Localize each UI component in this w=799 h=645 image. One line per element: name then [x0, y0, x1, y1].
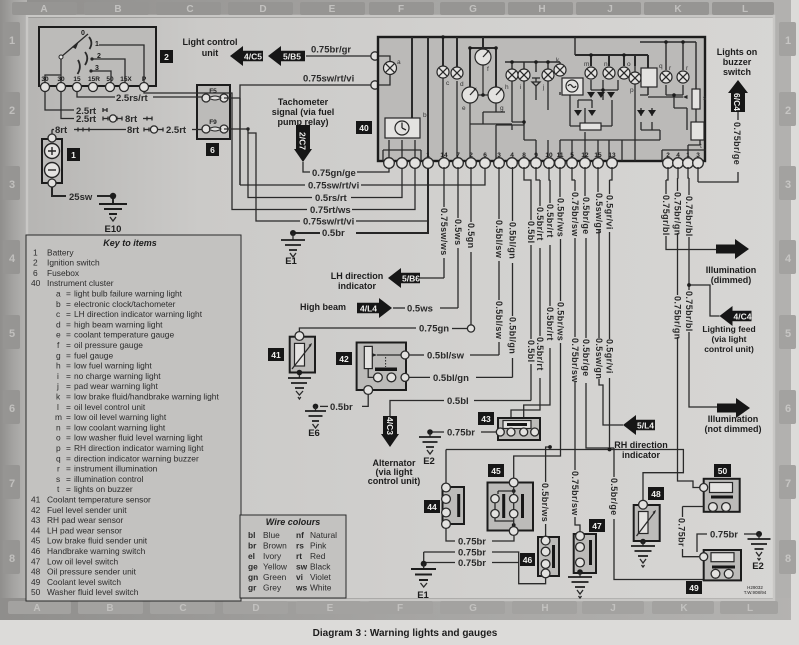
svg-text:0.5ws: 0.5ws — [407, 304, 433, 315]
svg-text:nf: nf — [296, 530, 304, 540]
svg-text:low coolant warning light: low coolant warning light — [74, 422, 166, 432]
svg-text:47: 47 — [592, 521, 602, 531]
svg-text:=: = — [66, 402, 71, 412]
svg-text:E2: E2 — [423, 456, 435, 467]
svg-text:=: = — [66, 309, 71, 319]
svg-text:0.5br/rt: 0.5br/rt — [535, 207, 545, 241]
svg-text:0.5bl/sw: 0.5bl/sw — [494, 220, 504, 259]
svg-text:6: 6 — [785, 403, 791, 415]
svg-text:b: b — [56, 299, 61, 309]
svg-text:Tachometer: Tachometer — [278, 97, 329, 107]
svg-text:0.5sw/gn: 0.5sw/gn — [594, 193, 604, 234]
svg-text:0.75br/bl: 0.75br/bl — [684, 196, 694, 237]
svg-text:oil pressure gauge: oil pressure gauge — [74, 340, 143, 350]
svg-text:el: el — [248, 551, 255, 561]
svg-text:Blue: Blue — [263, 530, 280, 540]
svg-text:46: 46 — [523, 555, 533, 565]
svg-text:42: 42 — [339, 354, 349, 364]
svg-text:6: 6 — [9, 403, 15, 415]
svg-text:47: 47 — [31, 556, 41, 566]
svg-text:2: 2 — [33, 258, 38, 268]
svg-text:Battery: Battery — [47, 247, 74, 257]
svg-text:n: n — [56, 422, 61, 432]
svg-text:6/C4: 6/C4 — [732, 93, 742, 111]
svg-text:0.75sw/rt/vi: 0.75sw/rt/vi — [308, 181, 359, 192]
svg-text:0.75br/gr: 0.75br/gr — [311, 45, 351, 56]
svg-text:0.5br/rt: 0.5br/rt — [535, 337, 545, 371]
svg-text:15R: 15R — [88, 76, 100, 83]
svg-text:2: 2 — [97, 53, 101, 60]
svg-text:illumination control: illumination control — [74, 474, 143, 484]
svg-text:0.5br: 0.5br — [330, 402, 353, 413]
svg-text:2.5rt: 2.5rt — [76, 114, 97, 125]
svg-text:=: = — [66, 299, 71, 309]
svg-text:0.75br/bl: 0.75br/bl — [684, 291, 694, 332]
svg-text:0.75br: 0.75br — [458, 558, 486, 569]
svg-text:8: 8 — [9, 553, 15, 565]
svg-text:3: 3 — [785, 179, 791, 191]
svg-text:3: 3 — [9, 179, 15, 191]
svg-text:0.5br/ge: 0.5br/ge — [581, 339, 591, 377]
svg-text:J: J — [607, 4, 613, 15]
svg-text:low oil level warning light: low oil level warning light — [74, 412, 167, 422]
svg-text:E2: E2 — [752, 561, 764, 572]
svg-text:p: p — [630, 87, 634, 94]
svg-text:d: d — [460, 81, 464, 88]
svg-text:i: i — [520, 84, 521, 91]
svg-text:F9: F9 — [209, 119, 217, 126]
svg-text:1: 1 — [785, 35, 791, 47]
svg-text:0.75br: 0.75br — [458, 548, 486, 559]
svg-text:(dimmed): (dimmed) — [711, 275, 752, 285]
svg-text:=: = — [66, 433, 71, 443]
svg-text:j: j — [542, 84, 544, 91]
svg-text:0.5br/ws: 0.5br/ws — [540, 483, 550, 522]
svg-text:d: d — [56, 319, 61, 329]
svg-text:ws: ws — [295, 583, 308, 593]
svg-text:4: 4 — [785, 253, 792, 265]
svg-text:2.5rt: 2.5rt — [166, 125, 187, 136]
svg-text:F: F — [398, 4, 404, 15]
svg-text:K: K — [680, 603, 688, 614]
svg-text:1: 1 — [95, 41, 99, 48]
svg-text:Washer fluid level switch: Washer fluid level switch — [47, 587, 139, 597]
svg-text:5: 5 — [9, 328, 15, 340]
svg-text:j: j — [56, 381, 59, 391]
svg-text:=: = — [66, 319, 71, 329]
svg-text:=: = — [66, 350, 71, 360]
svg-text:Oil pressure sender unit: Oil pressure sender unit — [47, 567, 137, 577]
svg-text:0.75br/sw: 0.75br/sw — [570, 338, 580, 383]
svg-text:2.5rs/rt: 2.5rs/rt — [116, 93, 149, 104]
svg-text:0.5sw/gn: 0.5sw/gn — [594, 338, 604, 379]
svg-text:vi: vi — [296, 572, 303, 582]
svg-text:41: 41 — [31, 495, 41, 505]
svg-text:D: D — [259, 4, 266, 15]
svg-text:direction indicator warning bu: direction indicator warning buzzer — [74, 453, 199, 463]
svg-text:=: = — [66, 361, 71, 371]
svg-text:2: 2 — [164, 52, 169, 62]
svg-text:40: 40 — [31, 278, 41, 288]
svg-text:3: 3 — [95, 65, 99, 72]
svg-text:44: 44 — [31, 525, 41, 535]
svg-text:Lighting feed: Lighting feed — [702, 324, 755, 334]
svg-text:Natural: Natural — [310, 530, 337, 540]
svg-text:High beam: High beam — [300, 302, 346, 312]
svg-text:br: br — [248, 541, 257, 551]
svg-text:e: e — [56, 330, 61, 340]
svg-text:0.75gn/ge: 0.75gn/ge — [312, 168, 356, 179]
svg-text:rs: rs — [296, 541, 304, 551]
svg-text:low fuel warning light: low fuel warning light — [74, 361, 152, 371]
svg-text:49: 49 — [31, 577, 41, 587]
svg-text:control unit): control unit) — [704, 344, 754, 354]
svg-text:h: h — [56, 361, 61, 371]
svg-text:control unit): control unit) — [368, 476, 421, 486]
svg-text:8rt: 8rt — [55, 125, 68, 136]
svg-text:q: q — [659, 63, 663, 70]
svg-text:49: 49 — [689, 583, 699, 593]
svg-text:ge: ge — [248, 562, 258, 572]
svg-text:B: B — [106, 603, 113, 614]
svg-text:G: G — [469, 603, 477, 614]
svg-text:0.75sw/ws: 0.75sw/ws — [439, 208, 449, 256]
svg-text:43: 43 — [31, 515, 41, 525]
svg-text:high beam warning light: high beam warning light — [74, 319, 163, 329]
svg-text:e: e — [462, 105, 466, 112]
svg-text:0.75rt/ws: 0.75rt/ws — [310, 205, 351, 216]
svg-text:buzzer: buzzer — [723, 57, 752, 67]
svg-text:(via light: (via light — [712, 334, 747, 344]
svg-text:0.75gn: 0.75gn — [419, 324, 449, 335]
svg-text:E10: E10 — [105, 224, 122, 235]
svg-text:gr: gr — [248, 583, 257, 593]
svg-text:=: = — [66, 381, 71, 391]
svg-text:Grey: Grey — [263, 583, 282, 593]
svg-text:LH pad wear sensor: LH pad wear sensor — [47, 525, 122, 535]
svg-text:=: = — [66, 484, 71, 494]
svg-text:48: 48 — [31, 567, 41, 577]
svg-text:RH direction: RH direction — [614, 440, 668, 450]
svg-text:42: 42 — [31, 505, 41, 515]
svg-text:43: 43 — [481, 414, 491, 424]
svg-text:0.75gr/bl: 0.75gr/bl — [661, 195, 671, 236]
svg-text:=: = — [66, 443, 71, 453]
svg-text:g: g — [500, 105, 504, 112]
svg-text:A: A — [33, 603, 40, 614]
svg-text:pad wear warning light: pad wear warning light — [74, 381, 158, 391]
svg-text:electronic clock/tachometer: electronic clock/tachometer — [74, 299, 176, 309]
svg-text:5/B5: 5/B5 — [283, 52, 301, 62]
svg-text:7: 7 — [9, 478, 15, 490]
svg-text:Fusebox: Fusebox — [47, 268, 80, 278]
svg-text:41: 41 — [271, 350, 281, 360]
svg-text:Yellow: Yellow — [263, 562, 288, 572]
svg-text:E: E — [329, 4, 336, 15]
svg-text:Ignition switch: Ignition switch — [47, 258, 100, 268]
svg-text:a: a — [397, 59, 401, 66]
svg-text:lights on buzzer: lights on buzzer — [74, 484, 133, 494]
svg-text:L: L — [742, 4, 748, 15]
svg-text:0.5gr/vi: 0.5gr/vi — [605, 339, 615, 374]
svg-text:0.75br/gn: 0.75br/gn — [673, 296, 683, 340]
svg-text:RH pad wear sensor: RH pad wear sensor — [47, 515, 124, 525]
svg-text:RH direction indicator warning: RH direction indicator warning light — [74, 443, 204, 453]
svg-text:0.5br: 0.5br — [322, 228, 345, 239]
svg-text:C: C — [179, 603, 186, 614]
svg-text:Violet: Violet — [310, 572, 331, 582]
svg-text:(not dimmed): (not dimmed) — [705, 424, 762, 434]
svg-text:=: = — [66, 371, 71, 381]
svg-text:Green: Green — [263, 572, 287, 582]
svg-text:0.5gr/vi: 0.5gr/vi — [605, 195, 615, 230]
svg-text:=: = — [66, 412, 71, 422]
svg-text:indicator: indicator — [338, 281, 377, 291]
svg-text:0.5br/rt: 0.5br/rt — [545, 307, 555, 341]
svg-text:Red: Red — [310, 551, 326, 561]
svg-text:5: 5 — [785, 328, 791, 340]
svg-text:m: m — [55, 412, 62, 422]
svg-text:=: = — [66, 289, 71, 299]
svg-text:15X: 15X — [120, 76, 132, 83]
svg-text:Low brake fluid sender unit: Low brake fluid sender unit — [47, 536, 148, 546]
svg-text:0.5br/rt: 0.5br/rt — [545, 204, 555, 238]
svg-text:J: J — [610, 603, 616, 614]
svg-text:0.5bl/sw: 0.5bl/sw — [494, 301, 504, 340]
svg-text:A: A — [40, 4, 47, 15]
svg-text:8rt: 8rt — [125, 114, 138, 125]
svg-text:1: 1 — [33, 247, 38, 257]
svg-text:=: = — [66, 392, 71, 402]
svg-text:0.5bl: 0.5bl — [447, 396, 469, 407]
svg-text:0.75br: 0.75br — [458, 537, 486, 548]
svg-text:F: F — [397, 603, 403, 614]
svg-text:H: H — [538, 4, 545, 15]
svg-text:E6: E6 — [308, 428, 320, 439]
svg-text:7: 7 — [785, 478, 791, 490]
svg-text:Key to items: Key to items — [103, 238, 157, 248]
svg-text:0.5gn: 0.5gn — [466, 223, 476, 249]
svg-text:Brown: Brown — [263, 541, 287, 551]
svg-text:low washer fluid level warning: low washer fluid level warning light — [74, 433, 203, 443]
svg-text:Lights on: Lights on — [717, 47, 758, 57]
svg-text:0.75sw/rt/vi: 0.75sw/rt/vi — [303, 74, 354, 85]
svg-text:H: H — [541, 603, 548, 614]
svg-text:0.5br/ws: 0.5br/ws — [556, 198, 566, 237]
svg-text:p: p — [56, 443, 61, 453]
svg-text:Coolant level switch: Coolant level switch — [47, 577, 121, 587]
svg-text:t: t — [700, 143, 702, 150]
svg-text:low brake fluid/handbrake warn: low brake fluid/handbrake warning light — [74, 392, 219, 402]
svg-text:Wire colours: Wire colours — [266, 517, 320, 527]
svg-text:4: 4 — [9, 253, 16, 265]
svg-text:b: b — [423, 112, 427, 119]
svg-text:0.75br/ge: 0.75br/ge — [732, 122, 742, 165]
svg-text:0: 0 — [81, 30, 85, 37]
svg-text:0.5rs/rt: 0.5rs/rt — [315, 193, 348, 204]
svg-text:5/B6: 5/B6 — [402, 274, 420, 284]
svg-text:E1: E1 — [285, 256, 297, 267]
svg-text:0.75br: 0.75br — [710, 530, 738, 541]
svg-text:4/C3: 4/C3 — [385, 417, 395, 435]
svg-text:6: 6 — [210, 145, 215, 155]
svg-text:0.75br: 0.75br — [447, 428, 475, 439]
svg-text:indicator: indicator — [622, 450, 661, 460]
svg-text:=: = — [66, 340, 71, 350]
svg-text:T.W.908/94: T.W.908/94 — [744, 590, 767, 595]
svg-text:45: 45 — [491, 466, 501, 476]
svg-text:0.75br/gn: 0.75br/gn — [673, 192, 683, 236]
svg-text:coolant temperature gauge: coolant temperature gauge — [74, 330, 174, 340]
svg-text:o: o — [56, 433, 61, 443]
svg-text:0.5bl/gn: 0.5bl/gn — [433, 373, 469, 384]
svg-text:r: r — [57, 464, 60, 474]
svg-text:LH direction: LH direction — [331, 271, 384, 281]
svg-text:50: 50 — [31, 587, 41, 597]
svg-text:4/C4: 4/C4 — [734, 312, 752, 322]
svg-text:0.5br/ws: 0.5br/ws — [556, 302, 566, 341]
svg-text:rt: rt — [296, 551, 302, 561]
svg-text:Instrument cluster: Instrument cluster — [47, 278, 114, 288]
svg-text:0.75br: 0.75br — [677, 518, 687, 547]
svg-text:0.5bl/gn: 0.5bl/gn — [508, 317, 518, 354]
svg-text:K: K — [674, 4, 682, 15]
svg-text:=: = — [66, 422, 71, 432]
svg-text:unit: unit — [202, 48, 219, 58]
svg-text:E: E — [327, 603, 334, 614]
svg-text:L: L — [747, 603, 753, 614]
svg-text:8: 8 — [785, 553, 791, 565]
svg-text:=: = — [66, 474, 71, 484]
svg-text:2: 2 — [9, 105, 15, 117]
svg-text:G: G — [469, 4, 477, 15]
svg-text:Diagram 3 : Warning lights and: Diagram 3 : Warning lights and gauges — [313, 628, 498, 639]
svg-text:46: 46 — [31, 546, 41, 556]
svg-text:light bulb failure warning lig: light bulb failure warning light — [74, 289, 183, 299]
svg-text:switch: switch — [723, 67, 751, 77]
svg-text:Light control: Light control — [183, 37, 238, 47]
svg-text:q: q — [56, 453, 61, 463]
svg-text:bl: bl — [248, 530, 255, 540]
svg-text:F5: F5 — [209, 88, 217, 95]
svg-text:=: = — [66, 453, 71, 463]
svg-text:1: 1 — [71, 150, 76, 160]
svg-text:2/C7: 2/C7 — [298, 132, 308, 150]
svg-text:5/L4: 5/L4 — [637, 421, 654, 431]
svg-text:fuel gauge: fuel gauge — [74, 350, 113, 360]
svg-text:Coolant temperature sensor: Coolant temperature sensor — [47, 495, 151, 505]
svg-text:no charge warning light: no charge warning light — [74, 371, 161, 381]
svg-text:s: s — [56, 474, 60, 484]
svg-text:a: a — [56, 289, 61, 299]
svg-text:i: i — [57, 371, 59, 381]
svg-text:c: c — [56, 309, 60, 319]
svg-text:Handbrake warning switch: Handbrake warning switch — [47, 546, 146, 556]
svg-text:0.5bl: 0.5bl — [526, 221, 536, 244]
svg-text:40: 40 — [359, 123, 369, 133]
svg-text:f: f — [487, 66, 489, 73]
svg-text:0.75br/sw: 0.75br/sw — [570, 192, 580, 237]
svg-text:0.75br/sw: 0.75br/sw — [570, 471, 580, 516]
svg-text:E1: E1 — [417, 590, 429, 601]
svg-text:0.5bl: 0.5bl — [526, 340, 536, 363]
svg-text:50: 50 — [718, 466, 728, 476]
svg-text:=: = — [66, 330, 71, 340]
svg-text:D: D — [252, 603, 259, 614]
svg-text:oil level control unit: oil level control unit — [74, 402, 146, 412]
svg-text:0.5br/ge: 0.5br/ge — [609, 478, 619, 516]
svg-text:Black: Black — [310, 562, 331, 572]
svg-text:LH direction indicator warning: LH direction indicator warning light — [74, 309, 203, 319]
svg-text:h: h — [505, 84, 509, 91]
svg-text:8rt: 8rt — [127, 125, 140, 136]
svg-text:o: o — [627, 61, 631, 68]
svg-text:=: = — [66, 464, 71, 474]
svg-text:C: C — [186, 4, 193, 15]
svg-text:0.5br/ge: 0.5br/ge — [581, 197, 591, 235]
svg-text:48: 48 — [651, 489, 661, 499]
svg-text:Low oil level switch: Low oil level switch — [47, 556, 119, 566]
svg-text:0.5bl/gn: 0.5bl/gn — [508, 222, 518, 259]
svg-text:White: White — [310, 583, 332, 593]
svg-text:6: 6 — [33, 268, 38, 278]
svg-text:4/L4: 4/L4 — [360, 304, 377, 314]
svg-text:sw: sw — [296, 562, 308, 572]
svg-text:0.5bl/sw: 0.5bl/sw — [427, 351, 465, 362]
svg-text:0.5ws: 0.5ws — [453, 219, 463, 246]
svg-text:n: n — [604, 61, 608, 68]
svg-text:instrument illumination: instrument illumination — [74, 464, 158, 474]
svg-text:gn: gn — [248, 572, 258, 582]
svg-text:m: m — [584, 61, 589, 68]
svg-text:B: B — [114, 4, 121, 15]
svg-text:Illumination: Illumination — [706, 265, 757, 275]
svg-text:l: l — [57, 402, 59, 412]
svg-text:Illumination: Illumination — [708, 414, 759, 424]
svg-text:Ivory: Ivory — [263, 551, 282, 561]
svg-text:44: 44 — [427, 502, 437, 512]
svg-text:25sw: 25sw — [69, 192, 93, 203]
svg-text:signal (via fuel: signal (via fuel — [272, 107, 335, 117]
svg-text:1: 1 — [9, 35, 15, 47]
svg-text:4/C5: 4/C5 — [244, 52, 262, 62]
svg-text:45: 45 — [31, 536, 41, 546]
svg-text:2: 2 — [785, 105, 791, 117]
svg-text:Pink: Pink — [310, 541, 327, 551]
svg-text:g: g — [56, 350, 61, 360]
svg-text:Fuel level sender unit: Fuel level sender unit — [47, 505, 127, 515]
svg-text:0.75sw/rt/vi: 0.75sw/rt/vi — [303, 217, 354, 228]
